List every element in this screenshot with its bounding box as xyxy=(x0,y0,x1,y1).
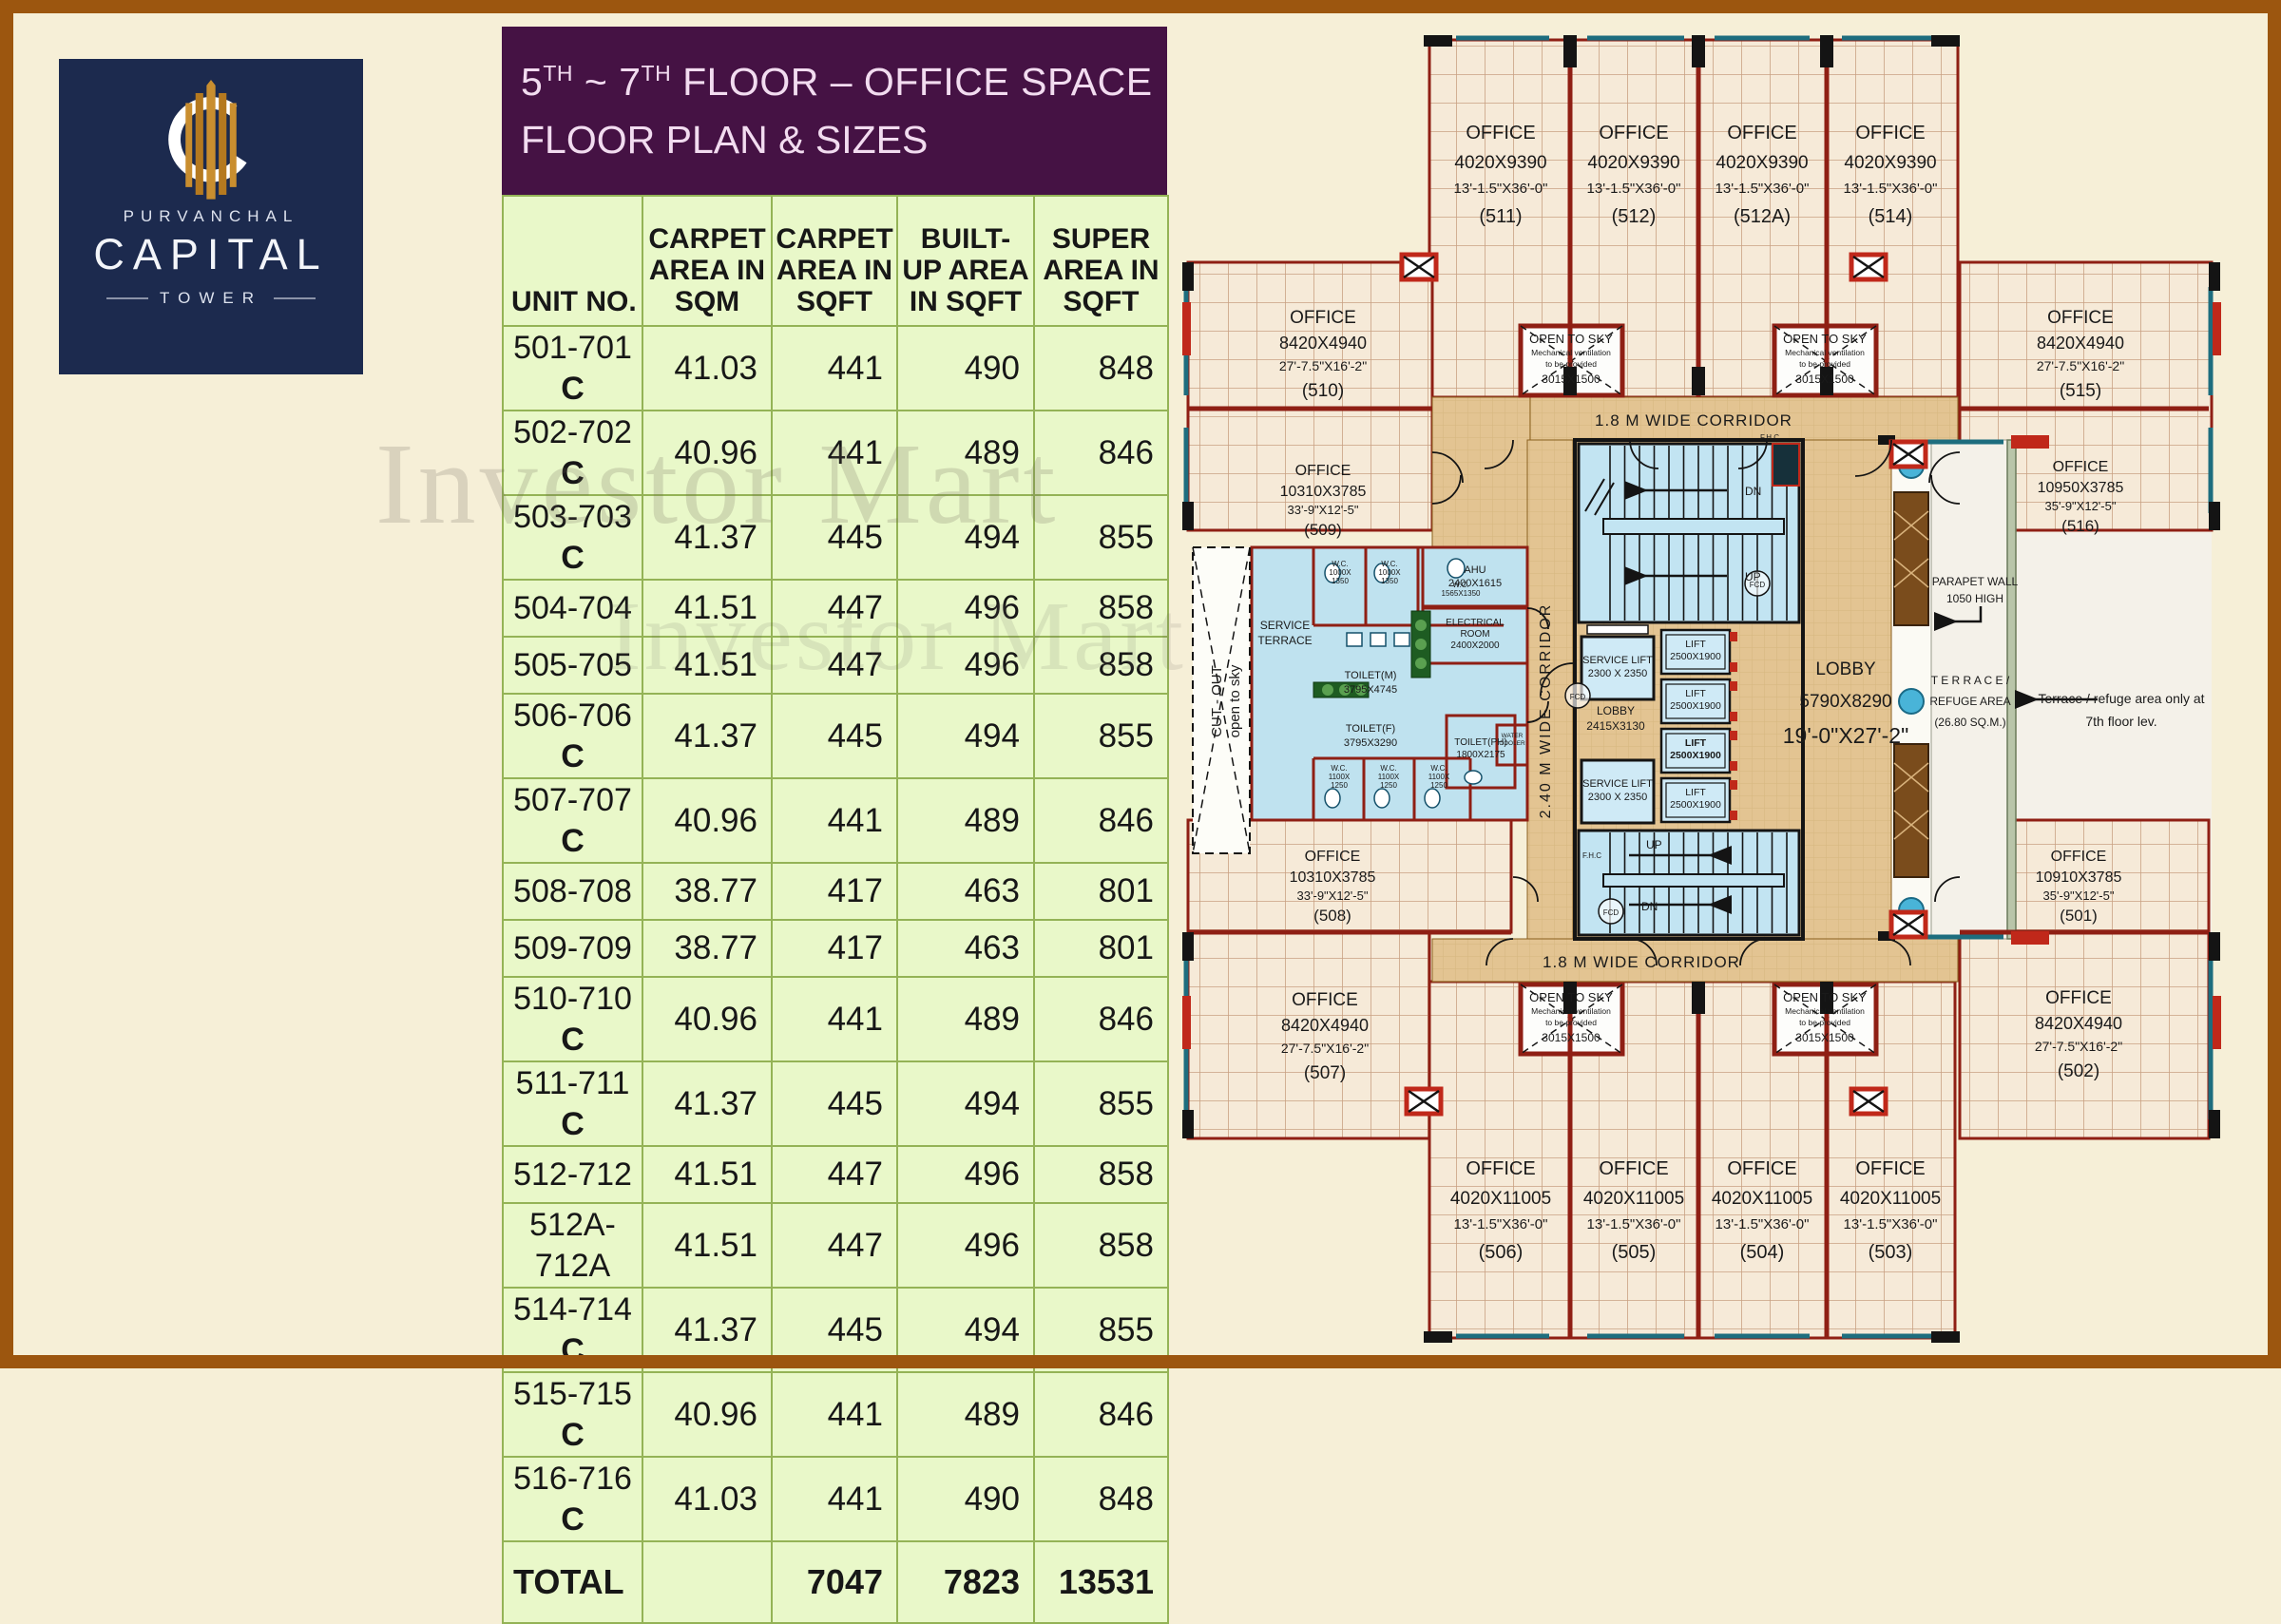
super-cell: 858 xyxy=(1034,1146,1168,1203)
total-sqft-cell: 7047 xyxy=(772,1541,897,1623)
label-room-r512a: 4020X9390 xyxy=(1716,153,1808,173)
table-row: 512A- 712A41.51447496858 xyxy=(503,1203,1168,1288)
sqft-cell: 447 xyxy=(772,1146,897,1203)
label-terrace: REFUGE AREA xyxy=(1929,695,2010,708)
builtup-cell: 494 xyxy=(897,694,1034,778)
label-open-to-sky-2: 3015X1500 xyxy=(1795,373,1854,386)
table-header-row: UNIT NO. CARPET AREA IN SQM CARPET AREA … xyxy=(503,196,1168,326)
sqm-cell: 41.03 xyxy=(642,1457,772,1541)
label-lobby-main: LOBBY xyxy=(1815,659,1876,679)
label-room-r515: 8420X4940 xyxy=(2037,334,2124,353)
label-room-r505: 13'-1.5"X36'-0" xyxy=(1587,1216,1681,1232)
label-room-r511: 13'-1.5"X36'-0" xyxy=(1454,181,1548,197)
sqft-cell: 441 xyxy=(772,411,897,495)
label-room-r514: OFFICE xyxy=(1855,123,1925,143)
unit-cell: 506-706 C xyxy=(503,694,642,778)
sqft-cell: 445 xyxy=(772,1288,897,1372)
label-room-r515: (515) xyxy=(2060,381,2101,401)
col-header-carpet-sqm: CARPET AREA IN SQM xyxy=(642,196,772,326)
label-wc-bot-3: 1250 xyxy=(1430,781,1447,790)
sqm-cell: 41.37 xyxy=(642,1061,772,1146)
label-wc-top-b: 1000X xyxy=(1378,568,1401,577)
label-room-r511: 4020X9390 xyxy=(1454,153,1546,173)
label-room-r512a: OFFICE xyxy=(1727,123,1796,143)
table-row: 501-701 C41.03441490848 xyxy=(503,326,1168,411)
brand-name-main: CAPITAL xyxy=(93,230,328,279)
sqm-cell: 41.51 xyxy=(642,637,772,694)
sqm-cell: 41.37 xyxy=(642,495,772,580)
label-room-r516: (516) xyxy=(2061,517,2099,535)
builtup-cell: 490 xyxy=(897,1457,1034,1541)
table-row: 505-70541.51447496858 xyxy=(503,637,1168,694)
label-toilet-ph: 1800X2175 xyxy=(1456,750,1505,760)
sqm-cell: 41.03 xyxy=(642,326,772,411)
col-header-builtup: BUILT- UP AREA IN SQFT xyxy=(897,196,1034,326)
total-label: TOTAL xyxy=(503,1541,642,1623)
label-service-lift-2: 2300 X 2350 xyxy=(1588,792,1647,803)
label-room-r515: 27'-7.5"X16'-2" xyxy=(2037,358,2124,373)
plan-core xyxy=(1565,440,1803,939)
label-terrace-note: Terrace / refuge area only at xyxy=(2038,691,2204,706)
label-corridor-bottom: 1.8 M WIDE CORRIDOR xyxy=(1543,953,1740,971)
label-room-r512: 4020X9390 xyxy=(1587,153,1679,173)
label-room-r504: OFFICE xyxy=(1727,1158,1796,1179)
sqm-cell: 40.96 xyxy=(642,1372,772,1457)
label-room-r503: 4020X11005 xyxy=(1840,1189,1941,1209)
label-wc-bot-3: 1100X xyxy=(1428,773,1450,781)
sqft-cell: 441 xyxy=(772,977,897,1061)
sqft-cell: 441 xyxy=(772,1457,897,1541)
label-lift-1: 2500X1900 xyxy=(1670,651,1721,662)
label-room-r503: OFFICE xyxy=(1855,1158,1925,1179)
sqm-cell: 40.96 xyxy=(642,411,772,495)
label-toilet-m: TOILET(M) xyxy=(1345,670,1397,681)
table-row: 516-716 C41.03441490848 xyxy=(503,1457,1168,1541)
label-open-to-sky-1: 3015X1500 xyxy=(1542,373,1601,386)
label-corridor-left: 2.40 M WIDE CORRIDOR xyxy=(1538,603,1554,819)
sqft-cell: 447 xyxy=(772,637,897,694)
label-wc-top-b: 1350 xyxy=(1381,577,1398,585)
label-open-to-sky-3: Mechanical ventilation xyxy=(1531,1006,1611,1016)
floor-plan: OFFICE4020X939013'-1.5"X36'-0"(511)OFFIC… xyxy=(1171,17,2254,1347)
label-room-r514: (514) xyxy=(1869,206,1913,227)
label-fcd-1: FCD xyxy=(1750,581,1766,589)
sqft-cell: 441 xyxy=(772,326,897,411)
col-header-unit: UNIT NO. xyxy=(503,196,642,326)
label-room-r512: OFFICE xyxy=(1599,123,1668,143)
label-room-r506: OFFICE xyxy=(1466,1158,1535,1179)
label-room-r505: (505) xyxy=(1612,1242,1657,1263)
label-electrical: ELECTRICAL xyxy=(1446,618,1505,628)
label-room-r503: 13'-1.5"X36'-0" xyxy=(1844,1216,1938,1232)
sqm-cell: 41.51 xyxy=(642,580,772,637)
builtup-cell: 490 xyxy=(897,326,1034,411)
label-toilet-m: 3795X4745 xyxy=(1344,684,1397,696)
label-room-r516: 10950X3785 xyxy=(2038,480,2124,496)
super-cell: 855 xyxy=(1034,495,1168,580)
table-row: 514-714 C41.37445494855 xyxy=(503,1288,1168,1372)
label-wc-top-c: 1565X1350 xyxy=(1442,589,1481,598)
fire-hose-cabinet xyxy=(1773,444,1799,486)
label-parapet: 1050 HIGH xyxy=(1946,592,2003,605)
label-open-to-sky-2: to be provided xyxy=(1799,359,1850,369)
table-row: 502-702 C40.96441489846 xyxy=(503,411,1168,495)
sqft-cell: 417 xyxy=(772,920,897,977)
label-room-r514: 4020X9390 xyxy=(1844,153,1936,173)
label-room-r502: OFFICE xyxy=(2045,988,2112,1008)
builtup-cell: 494 xyxy=(897,495,1034,580)
label-room-r502: (502) xyxy=(2058,1061,2099,1081)
label-room-r508: (508) xyxy=(1313,907,1351,925)
label-dn-top: DN xyxy=(1745,485,1761,498)
sqm-cell: 41.51 xyxy=(642,1146,772,1203)
label-room-r502: 27'-7.5"X16'-2" xyxy=(2035,1039,2122,1054)
label-room-r508: 33'-9"X12'-5" xyxy=(1297,888,1369,903)
sqm-cell: 40.96 xyxy=(642,778,772,863)
label-room-r512a: 13'-1.5"X36'-0" xyxy=(1716,181,1810,197)
super-cell: 846 xyxy=(1034,1372,1168,1457)
builtup-cell: 496 xyxy=(897,637,1034,694)
super-cell: 848 xyxy=(1034,326,1168,411)
unit-cell: 515-715 C xyxy=(503,1372,642,1457)
super-cell: 855 xyxy=(1034,1288,1168,1372)
table-row: 504-70441.51447496858 xyxy=(503,580,1168,637)
super-cell: 846 xyxy=(1034,411,1168,495)
unit-cell: 502-702 C xyxy=(503,411,642,495)
col-header-carpet-sqft: CARPET AREA IN SQFT xyxy=(772,196,897,326)
label-room-r507: 8420X4940 xyxy=(1281,1016,1369,1035)
label-electrical: ROOM xyxy=(1460,629,1489,640)
table-row: 511-711 C41.37445494855 xyxy=(503,1061,1168,1146)
label-lift-3: 2500X1900 xyxy=(1670,750,1721,761)
total-sqm-cell xyxy=(642,1541,772,1623)
label-terrace: T E R R A C E / xyxy=(1931,674,2010,687)
label-terrace-note: 7th floor lev. xyxy=(2085,714,2156,729)
label-wc-bot-3: W.C. xyxy=(1430,764,1447,773)
builtup-cell: 489 xyxy=(897,977,1034,1061)
label-open-to-sky-4: Mechanical ventilation xyxy=(1785,1006,1865,1016)
table-row: 510-710 C40.96441489846 xyxy=(503,977,1168,1061)
label-wc-top-c: W.C. xyxy=(1452,581,1468,589)
label-room-r510: OFFICE xyxy=(1290,308,1356,328)
label-room-r507: OFFICE xyxy=(1292,990,1358,1010)
builtup-cell: 496 xyxy=(897,1146,1034,1203)
label-room-r512a: (512A) xyxy=(1734,206,1791,227)
label-open-to-sky-1: Mechanical ventilation xyxy=(1531,348,1611,357)
label-wc-top-b: W.C. xyxy=(1381,560,1397,568)
sqm-cell: 38.77 xyxy=(642,863,772,920)
label-room-r506: 13'-1.5"X36'-0" xyxy=(1454,1216,1548,1232)
label-room-r507: 27'-7.5"X16'-2" xyxy=(1281,1041,1369,1056)
label-fhc-bottom: F.H.C xyxy=(1582,851,1601,860)
label-wc-top-a: 1000X xyxy=(1329,568,1351,577)
builtup-cell: 463 xyxy=(897,920,1034,977)
label-room-r511: (511) xyxy=(1479,206,1522,227)
sqft-cell: 447 xyxy=(772,1203,897,1288)
sqft-cell: 441 xyxy=(772,778,897,863)
table-row: 508-70838.77417463801 xyxy=(503,863,1168,920)
label-room-r509: OFFICE xyxy=(1295,463,1351,479)
label-toilet-f: 3795X3290 xyxy=(1344,737,1397,749)
builtup-cell: 463 xyxy=(897,863,1034,920)
label-wc-bot-2: W.C. xyxy=(1380,764,1396,773)
rule-right xyxy=(274,297,316,299)
unit-cell: 508-708 xyxy=(503,863,642,920)
label-room-r510: 27'-7.5"X16'-2" xyxy=(1279,358,1367,373)
super-cell: 855 xyxy=(1034,694,1168,778)
unit-cell: 505-705 xyxy=(503,637,642,694)
label-water-cooler: WATER xyxy=(1502,733,1524,739)
label-room-r508: 10310X3785 xyxy=(1290,869,1376,886)
brand-name-sub: TOWER xyxy=(160,289,262,308)
capital-tower-icon xyxy=(155,80,267,201)
label-cut-out: open to sky xyxy=(1227,664,1243,737)
label-room-r509: (509) xyxy=(1304,521,1342,539)
label-wc-bot-2: 1250 xyxy=(1380,781,1397,790)
label-fcd-3: FCD xyxy=(1603,908,1620,917)
unit-cell: 510-710 C xyxy=(503,977,642,1061)
label-lobby-small: 2415X3130 xyxy=(1586,719,1645,733)
brand-logo: PURVANCHAL CAPITAL TOWER xyxy=(59,59,363,374)
label-cut-out: CUT - OUT xyxy=(1209,665,1225,737)
builtup-cell: 494 xyxy=(897,1288,1034,1372)
label-wc-bot-2: 1100X xyxy=(1378,773,1400,781)
label-wc-bot-1: 1250 xyxy=(1331,781,1348,790)
label-room-r505: OFFICE xyxy=(1599,1158,1668,1179)
label-wc-bot-1: 1100X xyxy=(1329,773,1351,781)
label-room-r501: 10910X3785 xyxy=(2036,869,2122,886)
sqm-cell: 40.96 xyxy=(642,977,772,1061)
label-wc-top-a: W.C. xyxy=(1332,560,1348,568)
label-room-r509: 33'-9"X12'-5" xyxy=(1288,503,1359,517)
label-fcd-2: FCD xyxy=(1570,693,1586,701)
label-dn-bottom: DN xyxy=(1641,900,1658,913)
label-electrical: 2400X2000 xyxy=(1450,640,1500,651)
builtup-cell: 494 xyxy=(897,1061,1034,1146)
table-row: 506-706 C41.37445494855 xyxy=(503,694,1168,778)
label-lift-2: LIFT xyxy=(1685,688,1706,699)
title-line-1: 5TH ~ 7TH FLOOR – OFFICE SPACE xyxy=(521,60,1167,105)
label-lift-2: 2500X1900 xyxy=(1670,700,1721,712)
rule-left xyxy=(106,297,148,299)
sqm-cell: 41.37 xyxy=(642,1288,772,1372)
sqft-cell: 417 xyxy=(772,863,897,920)
sqm-cell: 41.51 xyxy=(642,1203,772,1288)
unit-cell: 516-716 C xyxy=(503,1457,642,1541)
brand-name-top: PURVANCHAL xyxy=(124,207,299,226)
label-parapet: PARAPET WALL xyxy=(1932,575,2019,588)
sqft-cell: 445 xyxy=(772,1061,897,1146)
table-body: 501-701 C41.03441490848502-702 C40.96441… xyxy=(503,326,1168,1623)
builtup-cell: 489 xyxy=(897,411,1034,495)
unit-cell: 509-709 xyxy=(503,920,642,977)
table-row: 515-715 C40.96441489846 xyxy=(503,1372,1168,1457)
label-room-r502: 8420X4940 xyxy=(2035,1014,2122,1033)
table-row: 507-707 C40.96441489846 xyxy=(503,778,1168,863)
label-room-r503: (503) xyxy=(1869,1242,1913,1263)
super-cell: 846 xyxy=(1034,977,1168,1061)
sqm-cell: 38.77 xyxy=(642,920,772,977)
unit-cell: 511-711 C xyxy=(503,1061,642,1146)
label-open-to-sky-2: OPEN TO SKY xyxy=(1783,332,1867,346)
super-cell: 858 xyxy=(1034,580,1168,637)
label-room-r509: 10310X3785 xyxy=(1280,484,1367,500)
label-service-terrace: TERRACE xyxy=(1257,634,1312,647)
label-room-r504: 13'-1.5"X36'-0" xyxy=(1716,1216,1810,1232)
label-ahu: AHU xyxy=(1464,564,1486,576)
super-cell: 801 xyxy=(1034,920,1168,977)
table-row: 512-71241.51447496858 xyxy=(503,1146,1168,1203)
builtup-cell: 496 xyxy=(897,1203,1034,1288)
label-room-r511: OFFICE xyxy=(1466,123,1535,143)
label-open-to-sky-4: to be provided xyxy=(1799,1018,1850,1027)
unit-cell: 512A- 712A xyxy=(503,1203,642,1288)
label-corridor-top: 1.8 M WIDE CORRIDOR xyxy=(1595,411,1792,430)
label-room-r516: 35'-9"X12'-5" xyxy=(2045,499,2117,513)
label-room-r515: OFFICE xyxy=(2047,308,2114,328)
unit-cell: 507-707 C xyxy=(503,778,642,863)
table-row: 509-70938.77417463801 xyxy=(503,920,1168,977)
unit-cell: 504-704 xyxy=(503,580,642,637)
label-room-r507: (507) xyxy=(1304,1063,1346,1083)
super-cell: 801 xyxy=(1034,863,1168,920)
label-lobby-main: 5790X8290 xyxy=(1799,692,1891,712)
total-builtup-cell: 7823 xyxy=(897,1541,1034,1623)
unit-cell: 512-712 xyxy=(503,1146,642,1203)
label-room-r510: 8420X4940 xyxy=(1279,334,1367,353)
super-cell: 846 xyxy=(1034,778,1168,863)
label-lift-3: LIFT xyxy=(1685,737,1707,749)
label-room-r506: 4020X11005 xyxy=(1450,1189,1551,1209)
label-terrace: (26.80 SQ.M.) xyxy=(1934,716,2005,729)
label-up-bottom: UP xyxy=(1646,838,1662,851)
label-room-r501: OFFICE xyxy=(2051,849,2107,865)
label-room-r504: (504) xyxy=(1740,1242,1785,1263)
label-room-r512: (512) xyxy=(1612,206,1657,227)
super-cell: 858 xyxy=(1034,637,1168,694)
label-service-lift-1: 2300 X 2350 xyxy=(1588,668,1647,679)
super-cell: 848 xyxy=(1034,1457,1168,1541)
sqft-cell: 445 xyxy=(772,495,897,580)
label-room-r508: OFFICE xyxy=(1305,849,1361,865)
label-service-terrace: SERVICE xyxy=(1260,619,1310,632)
label-open-to-sky-1: to be provided xyxy=(1545,359,1597,369)
label-room-r506: (506) xyxy=(1479,1242,1524,1263)
builtup-cell: 489 xyxy=(897,1372,1034,1457)
label-lift-1: LIFT xyxy=(1685,639,1706,650)
label-service-lift-2: SERVICE LIFT xyxy=(1582,778,1653,790)
label-room-r510: (510) xyxy=(1302,381,1344,401)
title-line-2: FLOOR PLAN & SIZES xyxy=(521,118,1167,162)
sqm-cell: 41.37 xyxy=(642,694,772,778)
sqft-cell: 447 xyxy=(772,580,897,637)
label-lift-4: 2500X1900 xyxy=(1670,799,1721,811)
label-open-to-sky-1: OPEN TO SKY xyxy=(1529,332,1613,346)
sqft-cell: 445 xyxy=(772,694,897,778)
builtup-cell: 489 xyxy=(897,778,1034,863)
unit-cell: 501-701 C xyxy=(503,326,642,411)
label-toilet-f: TOILET(F) xyxy=(1346,723,1395,735)
table-row: 503-703 C41.37445494855 xyxy=(503,495,1168,580)
total-super-cell: 13531 xyxy=(1034,1541,1168,1623)
super-cell: 855 xyxy=(1034,1061,1168,1146)
table-total-row: TOTAL7047782313531 xyxy=(503,1541,1168,1623)
label-open-to-sky-3: to be provided xyxy=(1545,1018,1597,1027)
unit-cell: 514-714 C xyxy=(503,1288,642,1372)
brand-name-sub-row: TOWER xyxy=(106,289,316,308)
label-wc-top-a: 1350 xyxy=(1332,577,1349,585)
label-open-to-sky-2: Mechanical ventilation xyxy=(1785,348,1865,357)
label-room-r514: 13'-1.5"X36'-0" xyxy=(1844,181,1938,197)
label-fhc-top: F.H.C xyxy=(1760,433,1779,442)
area-table: UNIT NO. CARPET AREA IN SQM CARPET AREA … xyxy=(502,195,1169,1624)
label-service-lift-1: SERVICE LIFT xyxy=(1582,655,1653,666)
label-room-r512: 13'-1.5"X36'-0" xyxy=(1587,181,1681,197)
label-room-r505: 4020X11005 xyxy=(1583,1189,1684,1209)
label-room-r501: (501) xyxy=(2060,907,2098,925)
col-header-super: SUPER AREA IN SQFT xyxy=(1034,196,1168,326)
label-wc-bot-1: W.C. xyxy=(1331,764,1347,773)
label-lobby-main: 19'-0"X27'-2" xyxy=(1783,723,1909,748)
unit-cell: 503-703 C xyxy=(503,495,642,580)
builtup-cell: 496 xyxy=(897,580,1034,637)
label-water-cooler: COOLER xyxy=(1499,740,1525,747)
super-cell: 858 xyxy=(1034,1203,1168,1288)
label-open-to-sky-4: OPEN TO SKY xyxy=(1783,990,1867,1004)
label-room-r501: 35'-9"X12'-5" xyxy=(2043,888,2115,903)
page-title: 5TH ~ 7TH FLOOR – OFFICE SPACE FLOOR PLA… xyxy=(502,27,1167,195)
label-open-to-sky-3: 3015X1500 xyxy=(1542,1031,1601,1044)
label-open-to-sky-3: OPEN TO SKY xyxy=(1529,990,1613,1004)
label-lobby-small: LOBBY xyxy=(1597,704,1635,717)
plan-terrace xyxy=(1891,440,2016,939)
label-room-r504: 4020X11005 xyxy=(1712,1189,1812,1209)
label-room-r516: OFFICE xyxy=(2053,459,2109,475)
label-open-to-sky-4: 3015X1500 xyxy=(1795,1031,1854,1044)
label-lift-4: LIFT xyxy=(1685,787,1706,798)
sqft-cell: 441 xyxy=(772,1372,897,1457)
